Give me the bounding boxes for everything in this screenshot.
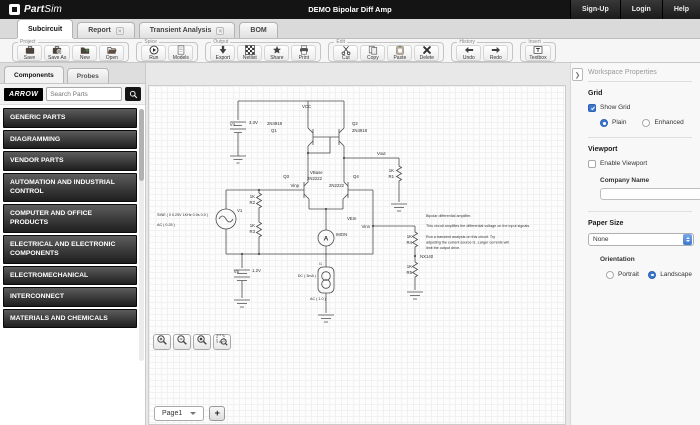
zoom-out-button[interactable]: [173, 334, 191, 350]
v5-name-label: V5: [234, 269, 240, 274]
circuit-schematic: VCC V4 3.3V 2N4918 Q1 Q2 2N4918 VBase Q3…: [149, 86, 567, 425]
category-list: GENERIC PARTS DIAGRAMMING VENDOR PARTS A…: [0, 105, 145, 328]
r1-resistor-symbol: [397, 158, 402, 202]
r3-value-label: 1K: [250, 223, 255, 228]
main-toolbar: Project Save Save As New Open Spice: [0, 39, 700, 63]
account-buttons: Sign-Up Login Help: [570, 0, 700, 19]
q2-name-label: Q2: [352, 121, 358, 126]
i1-dc-label: DC ( 3mA ): [298, 274, 316, 278]
cut-label: Cut: [342, 56, 350, 61]
note-line-3: Run a transient analysis on this circuit…: [426, 235, 495, 239]
zoom-fit-icon: [196, 333, 208, 351]
tab-bom-label: BOM: [250, 27, 266, 34]
new-button[interactable]: New: [72, 45, 97, 61]
tab-transient-label: Transient Analysis: [150, 27, 212, 34]
new-file-icon: [80, 45, 90, 55]
netlist-grid-icon: [245, 45, 255, 55]
print-label: Print: [299, 56, 309, 61]
i1-circle-top: [322, 272, 331, 281]
save-button[interactable]: Save: [17, 45, 42, 61]
grid-enhanced-radio[interactable]: [642, 119, 650, 127]
paper-size-select[interactable]: None: [588, 233, 694, 246]
save-as-icon: [52, 45, 62, 55]
search-icon: [129, 87, 138, 102]
nx140-node-label: NX140: [420, 254, 434, 259]
grid-plain-label: Plain: [612, 119, 626, 127]
panel-header: Workspace Properties: [588, 63, 692, 82]
r1-value-label: 1K: [389, 168, 394, 173]
i1-ac-label: AC ( 1.0 ): [310, 297, 326, 301]
group-output-label: Output: [211, 39, 230, 45]
sidebar-scrollbar[interactable]: [139, 109, 144, 361]
note-line-1: Bipolar differential amplifier.: [426, 214, 471, 218]
models-label: Models: [173, 56, 189, 61]
cut-button[interactable]: Cut: [333, 45, 358, 61]
models-button[interactable]: Models: [168, 45, 193, 61]
imon-label: IMON: [336, 232, 347, 237]
grid-enhanced-label: Enhanced: [654, 119, 683, 127]
note-line-2: This circuit amplifies the differential …: [426, 224, 530, 228]
textbox-button[interactable]: Textbox: [525, 45, 550, 61]
company-name-label: Company Name: [600, 177, 649, 185]
q3-name-label: Q3: [283, 174, 289, 179]
chevron-right-icon: ❯: [575, 71, 580, 79]
undo-label: Undo: [463, 56, 475, 61]
redo-label: Redo: [490, 56, 502, 61]
v4-value-label: 3.3V: [249, 120, 258, 125]
sidebar-scrollbar-thumb[interactable]: [139, 109, 144, 181]
q2-part-label: 2N4918: [352, 128, 368, 133]
category-generic-parts[interactable]: GENERIC PARTS: [3, 108, 137, 128]
top-bar: PartSim DEMO Bipolar Diff Amp Sign-Up Lo…: [0, 0, 700, 19]
partsim-logo-text: PartSim: [24, 4, 62, 15]
print-icon: [299, 45, 309, 55]
toolbar-group-insert: Insert Textbox: [520, 42, 555, 62]
zoom-fit-button[interactable]: [193, 334, 211, 350]
v1-ac-label: AC ( 0.25 ): [157, 223, 175, 227]
note-line-5: limit the output drive.: [426, 246, 460, 250]
i1-name-label: I1: [319, 262, 322, 266]
delete-x-icon: [422, 45, 432, 55]
paste-button[interactable]: Paste: [387, 45, 412, 61]
redo-arrow-icon: [491, 45, 501, 55]
partsim-logo-icon: [9, 4, 20, 15]
r3-resistor-symbol: [257, 216, 262, 254]
show-grid-label: Show Grid: [600, 104, 630, 112]
r5-resistor-symbol: [413, 262, 418, 290]
orientation-portrait-radio[interactable]: [606, 271, 614, 279]
page-tab-label: Page1: [162, 410, 182, 417]
components-sidebar: Components Probes ARROW GENERIC PARTS DI…: [0, 63, 146, 425]
viewport-section-title: Viewport: [588, 146, 692, 153]
login-button[interactable]: Login: [620, 0, 662, 19]
open-button[interactable]: Open: [99, 45, 124, 61]
r5-value-label: 1K: [407, 264, 412, 269]
group-project-label: Project: [18, 39, 38, 45]
add-page-button[interactable]: +: [209, 406, 225, 421]
vout-label: Vout: [377, 151, 386, 156]
enable-viewport-checkbox[interactable]: [588, 160, 596, 168]
category-automation-industrial[interactable]: AUTOMATION AND INDUSTRIAL CONTROL: [3, 173, 137, 202]
category-interconnect[interactable]: INTERCONNECT: [3, 287, 137, 307]
save-icon: [25, 45, 35, 55]
arrow-brand-logo: ARROW: [4, 88, 43, 101]
paste-clipboard-icon: [395, 45, 405, 55]
zoom-region-icon: [216, 333, 228, 351]
print-button[interactable]: Print: [291, 45, 316, 61]
category-materials-chemicals[interactable]: MATERIALS AND CHEMICALS: [3, 309, 137, 329]
q1-diode-connect-wire: [308, 137, 330, 153]
save-label: Save: [24, 56, 35, 61]
r2-value-label: 1K: [250, 194, 255, 199]
copy-label: Copy: [367, 56, 379, 61]
v4-name-label: V4: [230, 122, 236, 127]
sidebar-tabs: Components Probes: [0, 63, 145, 84]
parts-search-bar: ARROW: [0, 84, 145, 105]
paper-size-value: None: [593, 236, 609, 243]
partsim-app: PartSim DEMO Bipolar Diff Amp Sign-Up Lo…: [0, 0, 700, 425]
save-as-label: Save As: [48, 56, 66, 61]
orientation-landscape-radio[interactable]: [648, 271, 656, 279]
grid-mode-row: Plain Enhanced: [600, 119, 692, 127]
company-name-input[interactable]: [600, 188, 700, 200]
v1-sine-glyph: [219, 216, 233, 222]
netlist-label: Netlist: [243, 56, 257, 61]
q1-name-label: Q1: [271, 128, 277, 133]
share-button[interactable]: Share: [264, 45, 289, 61]
run-icon: [149, 45, 159, 55]
r4-name-label: R4: [407, 240, 413, 245]
page-bar: Page1 +: [154, 406, 225, 421]
grid-section-title: Grid: [588, 90, 692, 97]
page-dropdown-icon[interactable]: [190, 412, 196, 415]
category-electromechanical[interactable]: ELECTROMECHANICAL: [3, 266, 137, 286]
ammeter-letter: A: [324, 236, 329, 243]
annotation-note: Bipolar differential amplifier. This cir…: [426, 214, 530, 250]
note-line-4: adjusting the current source I1. Larger …: [426, 241, 509, 245]
run-button[interactable]: Run: [141, 45, 166, 61]
category-computer-office[interactable]: COMPUTER AND OFFICE PRODUCTS: [3, 204, 137, 233]
search-parts-input[interactable]: [46, 87, 122, 101]
group-edit-label: Edit: [334, 39, 347, 45]
save-as-button[interactable]: Save As: [44, 45, 70, 61]
delete-label: Delete: [420, 56, 434, 61]
vinn-label: Vinn: [361, 224, 370, 229]
v4-ground-symbol: [230, 156, 246, 163]
q3-part-label: 2N2222: [307, 176, 323, 181]
tab-transient-close-icon[interactable]: ✕: [216, 27, 224, 35]
r4-value-label: 1K: [407, 234, 412, 239]
show-grid-checkbox[interactable]: [588, 104, 596, 112]
enable-viewport-row: Enable Viewport: [588, 160, 692, 168]
v5-value-label: 1.2V: [252, 268, 261, 273]
toolbar-group-project: Project Save Save As New Open: [12, 42, 129, 62]
grid-plain-radio[interactable]: [600, 119, 608, 127]
help-button[interactable]: Help: [662, 0, 700, 19]
schematic-canvas[interactable]: VCC V4 3.3V 2N4918 Q1 Q2 2N4918 VBase Q3…: [148, 85, 566, 425]
toolbar-group-edit: Edit Cut Copy Paste Delete: [328, 42, 444, 62]
workspace-properties-panel: ❯ Workspace Properties Grid Show Grid Pl…: [570, 63, 700, 425]
show-grid-row: Show Grid: [588, 104, 692, 112]
tab-probes[interactable]: Probes: [67, 68, 109, 83]
copy-icon: [368, 45, 378, 55]
undo-arrow-icon: [464, 45, 474, 55]
partsim-logo[interactable]: PartSim: [0, 0, 71, 19]
group-insert-label: Insert: [526, 39, 543, 45]
export-arrow-icon: [218, 45, 228, 55]
v1-name-label: V1: [237, 208, 243, 213]
share-label: Share: [270, 56, 283, 61]
q4-transistor-symbol: [343, 182, 373, 209]
orientation-title-row: Orientation: [600, 256, 692, 264]
tab-report-close-icon[interactable]: ✕: [116, 27, 124, 35]
tab-subcircuit-label: Subcircuit: [28, 26, 62, 33]
v5-ground-symbol: [234, 300, 250, 307]
tab-report[interactable]: Report✕: [77, 22, 135, 38]
search-button[interactable]: [125, 87, 141, 101]
emitter-tail-wire: [309, 209, 343, 230]
orientation-label: Orientation: [600, 256, 635, 264]
tab-components[interactable]: Components: [4, 66, 64, 83]
open-label: Open: [106, 56, 118, 61]
i1-circle-bottom: [322, 280, 331, 289]
paste-label: Paste: [393, 56, 406, 61]
category-vendor-parts[interactable]: VENDOR PARTS: [3, 151, 137, 171]
category-electrical-electronic[interactable]: ELECTRICAL AND ELECTRONIC COMPONENTS: [3, 235, 137, 264]
logo-part: Part: [24, 4, 44, 15]
paper-size-section-title: Paper Size: [588, 220, 692, 227]
tab-report-label: Report: [88, 27, 111, 34]
toolbar-group-spice: Spice Run Models: [136, 42, 198, 62]
orientation-row: Portrait Landscape: [606, 271, 692, 279]
document-title: DEMO Bipolar Diff Amp: [308, 5, 391, 14]
group-spice-label: Spice: [142, 39, 159, 45]
cut-scissors-icon: [341, 45, 351, 55]
share-star-icon: [272, 45, 282, 55]
r3-name-label: R3: [250, 229, 256, 234]
page-tab[interactable]: Page1: [154, 406, 204, 421]
new-label: New: [80, 56, 90, 61]
toolbar-group-history: History Undo Redo: [451, 42, 513, 62]
undo-button[interactable]: Undo: [456, 45, 481, 61]
export-label: Export: [216, 56, 230, 61]
models-document-icon: [176, 45, 186, 55]
company-name-row: Company Name: [600, 177, 692, 185]
open-folder-icon: [107, 45, 117, 55]
category-diagramming[interactable]: DIAGRAMMING: [3, 130, 137, 150]
enable-viewport-label: Enable Viewport: [600, 160, 647, 168]
select-spinner-icon: [683, 234, 692, 245]
properties-content: Workspace Properties Grid Show Grid Plai…: [588, 63, 692, 279]
orientation-landscape-label: Landscape: [660, 271, 692, 279]
zoom-in-icon: [156, 333, 168, 351]
divider: [588, 211, 692, 212]
r2-name-label: R2: [250, 200, 256, 205]
r2-resistor-symbol: [257, 190, 262, 216]
tab-bom[interactable]: BOM: [239, 22, 277, 38]
r1-ground-symbol: [391, 204, 407, 211]
group-history-label: History: [457, 39, 477, 45]
q4-part-label: 2N2222: [329, 183, 345, 188]
q1-part-label: 2N4918: [267, 121, 283, 126]
q4-name-label: Q4: [353, 174, 359, 179]
zoom-out-icon: [176, 333, 188, 351]
netlist-button[interactable]: Netlist: [237, 45, 262, 61]
orientation-portrait-label: Portrait: [618, 271, 639, 279]
vem-label: VEm: [347, 216, 357, 221]
logo-sim: Sim: [44, 4, 62, 15]
textbox-icon: [533, 45, 543, 55]
r5-ground-symbol: [407, 292, 423, 299]
divider: [588, 137, 692, 138]
panel-collapse-button[interactable]: ❯: [572, 68, 583, 81]
v1-sine-label: SINE ( 0 0.25V 1KHz 0.0s 0.0 ): [157, 213, 208, 217]
redo-button[interactable]: Redo: [483, 45, 508, 61]
q1-transistor-symbol: [308, 101, 330, 146]
run-label: Run: [149, 56, 158, 61]
q2-transistor-symbol: [330, 101, 344, 146]
toolbar-group-output: Output Export Netlist Share Print: [205, 42, 321, 62]
zoom-toolbar: [153, 334, 231, 350]
signup-button[interactable]: Sign-Up: [570, 0, 620, 19]
tab-transient-analysis[interactable]: Transient Analysis✕: [139, 22, 236, 38]
textbox-label: Textbox: [529, 56, 546, 61]
document-tabstrip: Subcircuit Report✕ Transient Analysis✕ B…: [0, 19, 700, 39]
tab-subcircuit[interactable]: Subcircuit: [17, 19, 73, 38]
zoom-in-button[interactable]: [153, 334, 171, 350]
delete-button[interactable]: Delete: [414, 45, 439, 61]
vcc-label: VCC: [302, 104, 311, 109]
r5-name-label: R5: [407, 270, 413, 275]
r1-name-label: R1: [389, 174, 395, 179]
vbase-label: VBase: [310, 170, 323, 175]
copy-button[interactable]: Copy: [360, 45, 385, 61]
export-button[interactable]: Export: [210, 45, 235, 61]
vinp-label: Vinp: [290, 183, 299, 188]
i1-ground-symbol: [318, 315, 334, 322]
zoom-region-button[interactable]: [213, 334, 231, 350]
